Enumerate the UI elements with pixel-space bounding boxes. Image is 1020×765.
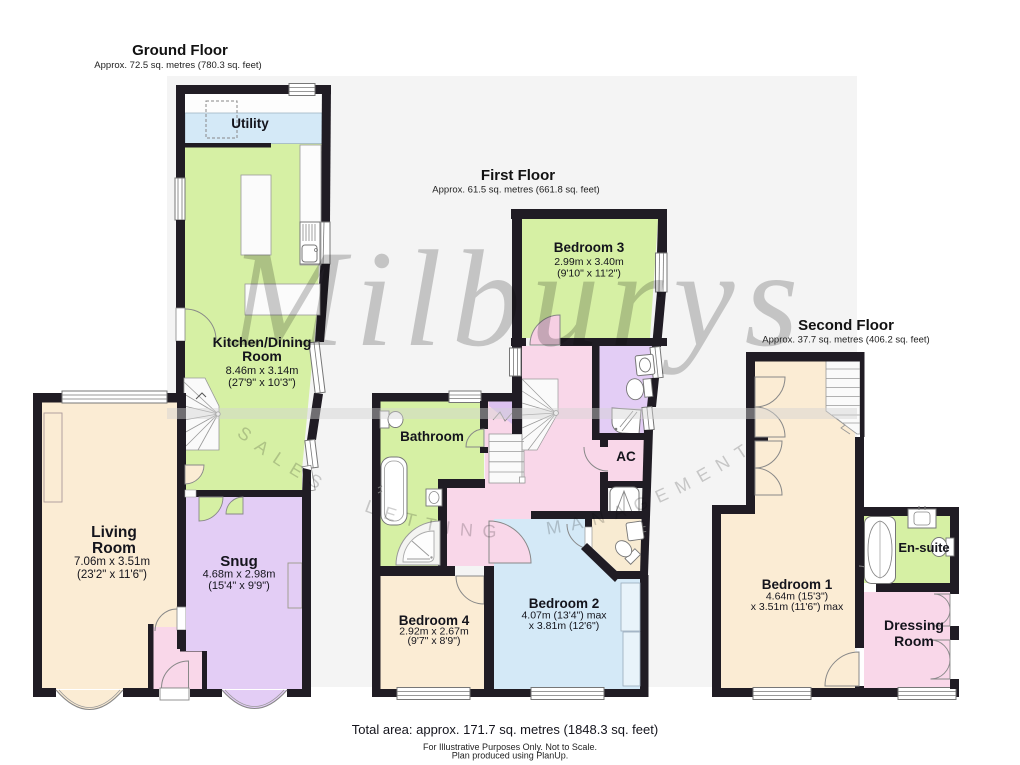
svg-text:Plan produced using PlanUp.: Plan produced using PlanUp. <box>452 751 569 761</box>
svg-text:First Floor: First Floor <box>481 167 555 184</box>
svg-text:(27'9" x 10'3"): (27'9" x 10'3") <box>228 377 296 389</box>
svg-text:AC: AC <box>616 449 636 464</box>
svg-text:Approx. 72.5 sq. metres (780.3: Approx. 72.5 sq. metres (780.3 sq. feet) <box>94 60 261 71</box>
svg-text:Bathroom: Bathroom <box>400 429 464 444</box>
svg-text:Room: Room <box>894 633 934 649</box>
svg-text:Total area: approx. 171.7 sq.: Total area: approx. 171.7 sq. metres (18… <box>352 722 658 737</box>
svg-text:(9'7" x 8'9"): (9'7" x 8'9") <box>408 635 461 647</box>
svg-text:x 3.81m (12'6"): x 3.81m (12'6") <box>529 620 600 632</box>
svg-text:Ground Floor: Ground Floor <box>132 42 228 59</box>
svg-text:4.68m x 2.98m: 4.68m x 2.98m <box>203 569 276 581</box>
svg-text:Second Floor: Second Floor <box>798 317 894 334</box>
svg-text:Dressing: Dressing <box>884 617 944 633</box>
svg-text:7.06m x 3.51m: 7.06m x 3.51m <box>74 556 150 568</box>
svg-text:Utility: Utility <box>231 116 269 131</box>
svg-text:x 3.51m (11'6") max: x 3.51m (11'6") max <box>751 601 844 613</box>
svg-text:Room: Room <box>92 540 136 557</box>
svg-text:Milburys: Milburys <box>228 222 808 375</box>
svg-text:Approx. 37.7 sq. metres (406.2: Approx. 37.7 sq. metres (406.2 sq. feet) <box>762 335 929 346</box>
svg-text:Living: Living <box>91 524 137 541</box>
svg-text:En-suite: En-suite <box>898 540 949 555</box>
svg-text:(23'2" x 11'6"): (23'2" x 11'6") <box>77 569 147 581</box>
svg-text:Snug: Snug <box>220 553 258 570</box>
svg-text:(15'4" x 9'9"): (15'4" x 9'9") <box>208 580 270 592</box>
svg-text:Approx. 61.5 sq. metres (661.8: Approx. 61.5 sq. metres (661.8 sq. feet) <box>432 185 599 196</box>
